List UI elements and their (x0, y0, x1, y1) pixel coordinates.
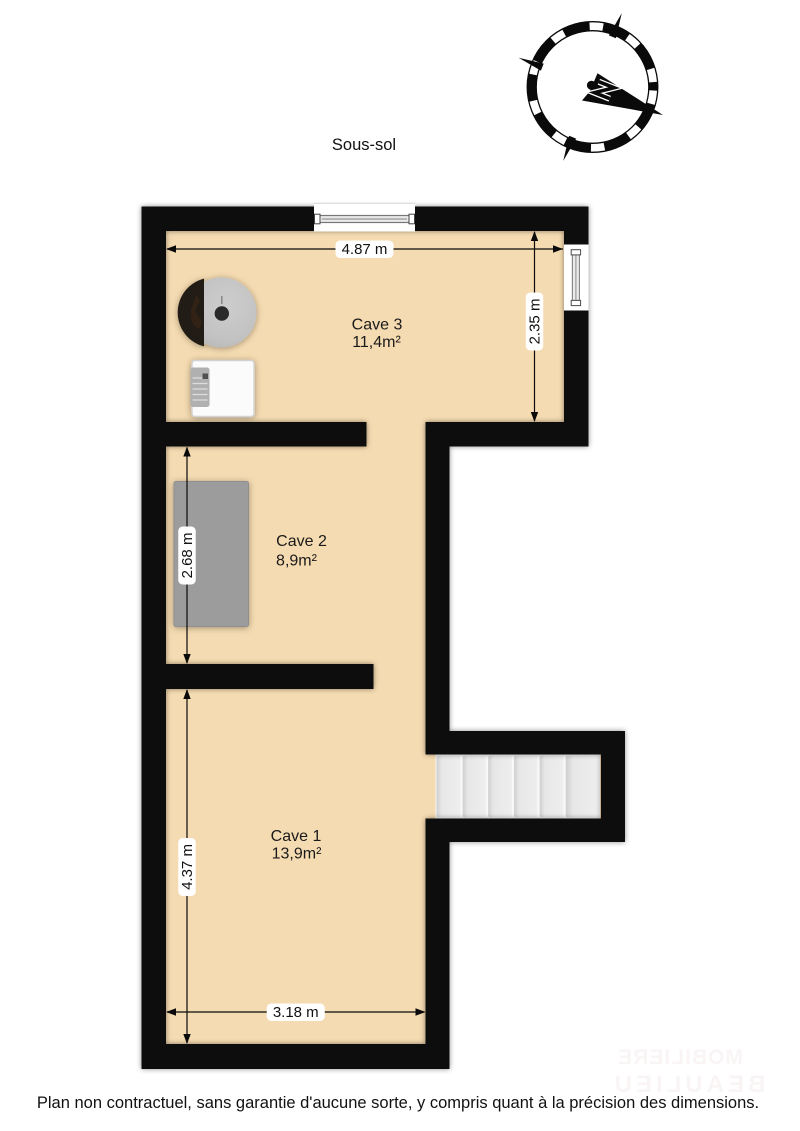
svg-text:Cave 2: Cave 2 (276, 533, 327, 550)
svg-text:4.37 m: 4.37 m (179, 844, 196, 890)
svg-text:3.18 m: 3.18 m (273, 1004, 319, 1021)
svg-text:Cave 3: Cave 3 (352, 317, 403, 334)
svg-text:11,4m²: 11,4m² (352, 334, 401, 351)
svg-text:2.68 m: 2.68 m (179, 533, 196, 579)
svg-text:2.35 m: 2.35 m (527, 299, 544, 345)
svg-text:Cave 1: Cave 1 (271, 828, 322, 845)
svg-text:Plan non contractuel, sans gar: Plan non contractuel, sans garantie d'au… (37, 1094, 759, 1112)
svg-text:Sous-sol: Sous-sol (332, 136, 396, 154)
svg-text:8,9m²: 8,9m² (276, 553, 318, 570)
svg-text:MOBILIERE: MOBILIERE (617, 1046, 743, 1069)
svg-text:13,9m²: 13,9m² (272, 846, 322, 863)
svg-text:4.87 m: 4.87 m (342, 241, 388, 258)
